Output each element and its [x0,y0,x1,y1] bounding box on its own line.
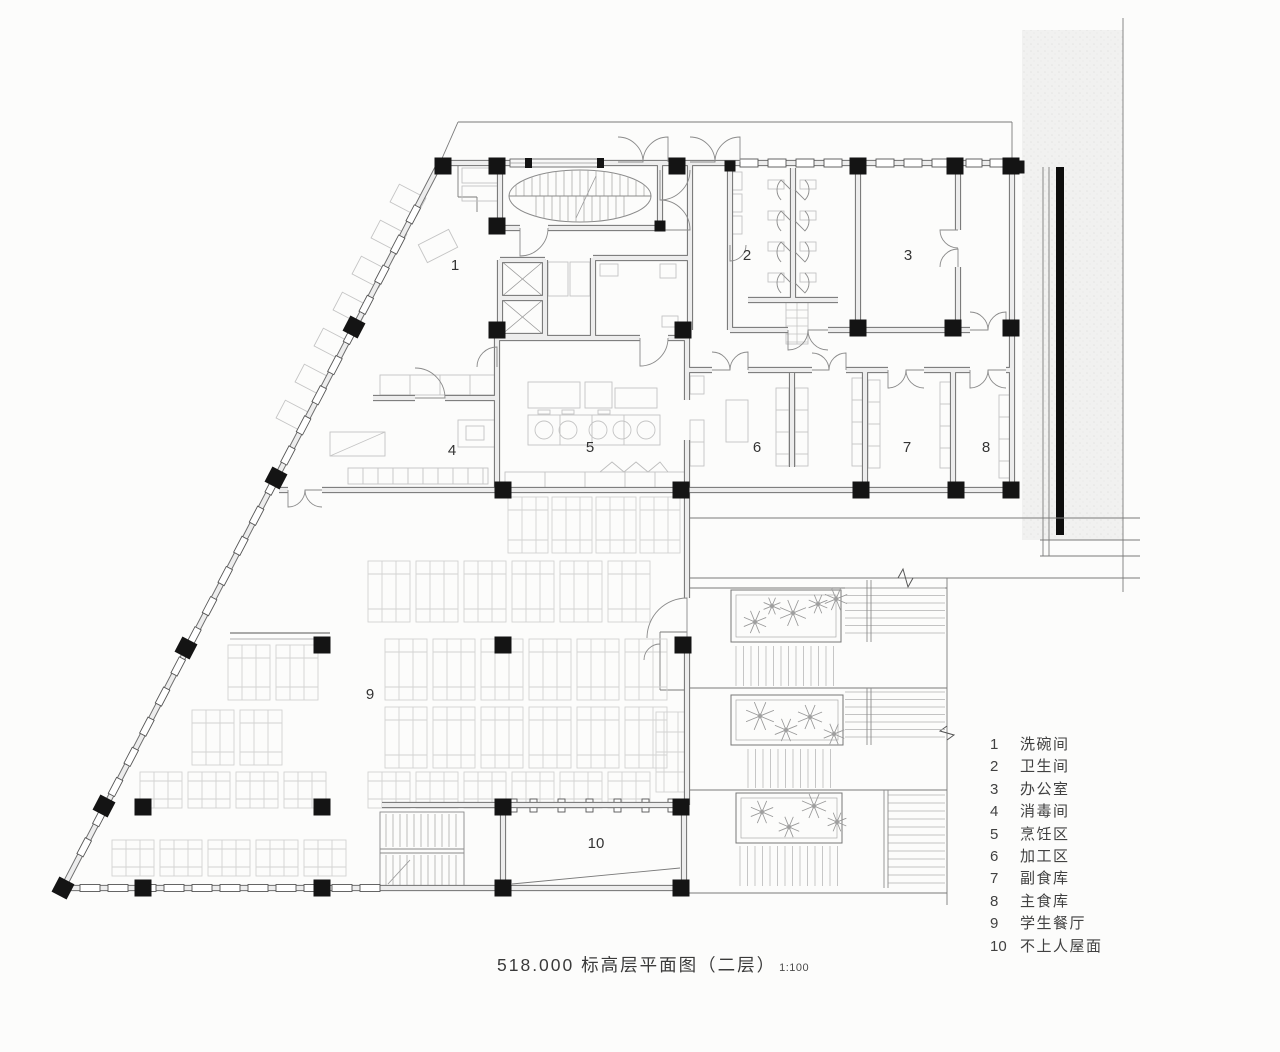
legend-item: 6加工区 [990,846,1103,868]
room-label-9: 9 [366,686,374,703]
legend-item: 7副食库 [990,868,1103,890]
legend-item-number: 2 [990,756,1020,778]
legend-item: 10不上人屋面 [990,936,1103,958]
dining-tables [112,497,686,876]
legend-item-number: 3 [990,779,1020,801]
legend-item: 5烹饪区 [990,824,1103,846]
legend-item: 3办公室 [990,779,1103,801]
existing-building-block [1022,30,1123,540]
legend-item: 4消毒间 [990,801,1103,823]
legend-item-number: 1 [990,734,1020,756]
room-label-6: 6 [753,439,761,456]
legend-item-label: 加工区 [1020,848,1070,865]
legend-item: 9学生餐厅 [990,913,1103,935]
legend-item-label: 卫生间 [1020,758,1070,775]
legend-item-label: 学生餐厅 [1020,915,1086,932]
legend-item-number: 7 [990,868,1020,890]
room-label-10: 10 [588,835,605,852]
legend-item-number: 6 [990,846,1020,868]
room-label-3: 3 [904,247,912,264]
legend: 1洗碗间2卫生间3办公室4消毒间5烹饪区6加工区7副食库8主食库9学生餐厅10不… [990,734,1103,958]
legend-item: 2卫生间 [990,756,1103,778]
legend-item-number: 4 [990,801,1020,823]
legend-item-label: 办公室 [1020,781,1070,798]
legend-item: 8主食库 [990,891,1103,913]
legend-item-label: 洗碗间 [1020,736,1070,753]
legend-item-number: 9 [990,913,1020,935]
terrace-steps-planters [731,580,945,888]
legend-item-label: 烹饪区 [1020,826,1070,843]
legend-item-number: 10 [990,936,1020,958]
room-label-2: 2 [743,247,751,264]
legend-item-label: 消毒间 [1020,803,1070,820]
room-label-7: 7 [903,439,911,456]
drawing-scale: 1:100 [779,962,809,974]
structural-columns [52,158,1025,900]
room-label-5: 5 [586,439,594,456]
floor-plan-sheet: 1 2 3 4 5 6 7 8 9 10 1洗碗间2卫生间3办公室4消毒间5烹饪… [0,0,1280,1047]
legend-item-number: 8 [990,891,1020,913]
legend-item: 1洗碗间 [990,734,1103,756]
legend-item-label: 主食库 [1020,893,1070,910]
room-label-4: 4 [448,442,456,459]
title-block: 518.000 标高层平面图（二层）1:100 [497,952,809,977]
legend-item-label: 不上人屋面 [1020,938,1103,955]
drawing-title: 518.000 标高层平面图（二层） [497,955,776,975]
room-label-8: 8 [982,439,990,456]
room-label-1: 1 [451,257,459,274]
legend-item-number: 5 [990,824,1020,846]
walls [63,163,1012,893]
legend-item-label: 副食库 [1020,870,1070,887]
